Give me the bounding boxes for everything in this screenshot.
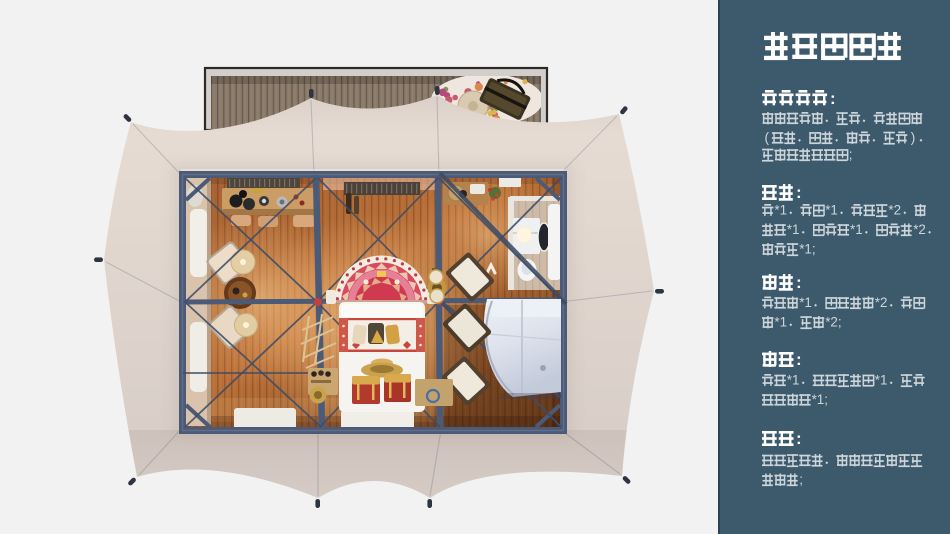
- svg-text:*1: *1: [774, 203, 787, 218]
- svg-text:*1;: *1;: [799, 242, 815, 257]
- svg-text:*1;: *1;: [812, 392, 828, 407]
- svg-text::: :: [796, 350, 802, 369]
- svg-text:*1: *1: [787, 222, 800, 237]
- svg-text:*2: *2: [888, 203, 901, 218]
- svg-text::: :: [796, 183, 802, 202]
- svg-text::: :: [796, 429, 802, 448]
- svg-text:): ): [911, 130, 916, 145]
- svg-text:*1: *1: [825, 203, 838, 218]
- svg-text:*1: *1: [850, 222, 863, 237]
- svg-text:*2: *2: [875, 295, 888, 310]
- svg-text:*1: *1: [774, 315, 787, 330]
- svg-text::: :: [796, 273, 802, 292]
- svg-text:;: ;: [849, 147, 853, 162]
- svg-text:*1: *1: [799, 295, 812, 310]
- svg-text::: :: [830, 89, 836, 108]
- svg-text:*2;: *2;: [825, 315, 841, 330]
- svg-text:;: ;: [799, 472, 803, 487]
- svg-text:(: (: [765, 130, 770, 145]
- svg-text:*1: *1: [787, 373, 800, 388]
- svg-text:*2: *2: [913, 222, 926, 237]
- svg-text:*1: *1: [875, 373, 888, 388]
